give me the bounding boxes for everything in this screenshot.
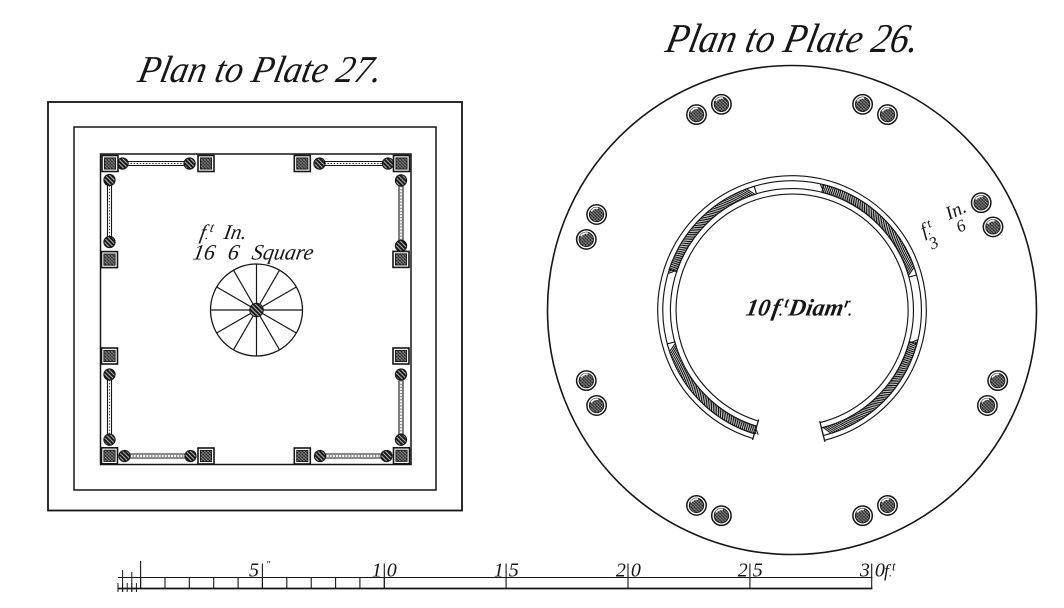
svg-text:3: 3	[859, 560, 870, 582]
svg-text:0: 0	[631, 560, 641, 582]
svg-text:1: 1	[372, 560, 382, 582]
svg-text:2: 2	[738, 560, 748, 582]
svg-text:5: 5	[753, 560, 763, 582]
svg-text:Plan to Plate 27.: Plan to Plate 27.	[134, 49, 387, 91]
svg-text:Plan to Plate 26.: Plan to Plate 26.	[661, 15, 924, 60]
svg-text:0: 0	[387, 560, 397, 582]
svg-text:166Square: 166Square	[191, 240, 316, 265]
svg-text:10f.tDiamr.: 10f.tDiamr.	[744, 295, 855, 322]
svg-text:2: 2	[616, 560, 626, 582]
svg-text:1: 1	[494, 560, 504, 582]
svg-text:5: 5	[249, 560, 259, 582]
svg-text:5: 5	[509, 560, 519, 582]
